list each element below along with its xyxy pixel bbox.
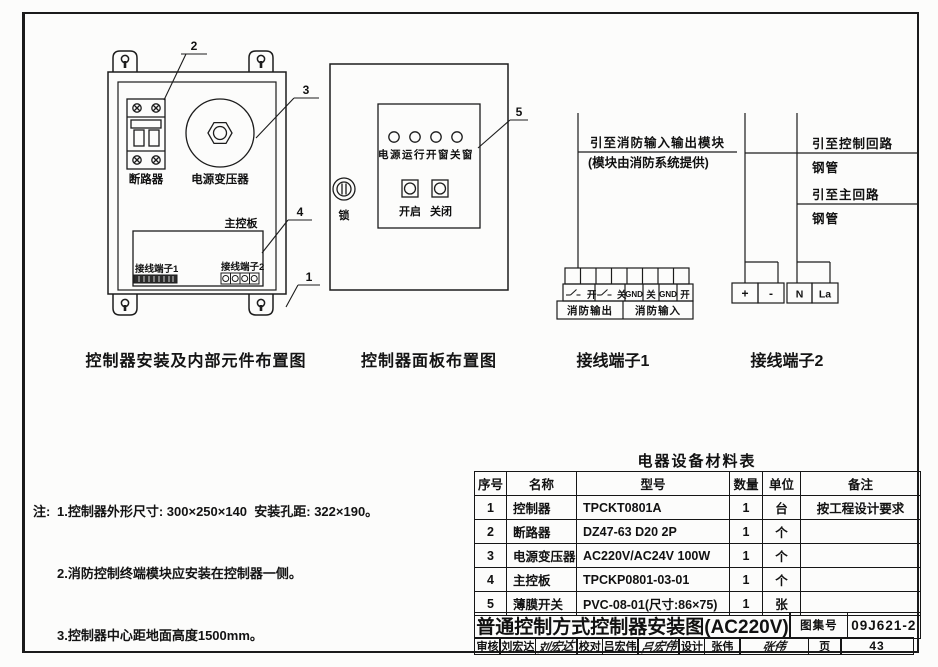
- terminal1-cell-label: 开: [587, 290, 597, 301]
- column-header: 型号: [577, 472, 730, 496]
- close-button-label: 关闭: [430, 204, 452, 218]
- designer-signature: 张伟: [761, 637, 788, 655]
- checker-name: 吕宏伟: [602, 637, 639, 655]
- table-header-row: 序号 名称 型号 数量 单位 备注: [475, 472, 921, 496]
- table-cell: 电源变压器: [507, 544, 577, 568]
- table-cell: 按工程设计要求: [801, 496, 921, 520]
- screw-icon: [133, 104, 160, 164]
- mounting-ear: [113, 294, 137, 315]
- table-cell: TPCKP0801-03-01: [577, 568, 730, 592]
- materials-table: 序号 名称 型号 数量 单位 备注 1 控制器 TPCKT0801A 1 台 按…: [474, 471, 921, 616]
- circuit-breaker: [127, 99, 165, 169]
- table-row: 4 主控板 TPCKP0801-03-01 1 个: [475, 568, 921, 592]
- notes-prefix: 注:: [33, 502, 57, 523]
- reviewer-name: 刘宏达: [499, 637, 536, 655]
- table-cell: 断路器: [507, 520, 577, 544]
- mounting-ear: [249, 294, 273, 315]
- designer-name: 张伟: [704, 637, 741, 655]
- callout-number: 1: [306, 270, 313, 284]
- table-row: 3 电源变压器 AC220V/AC24V 100W 1 个: [475, 544, 921, 568]
- mainboard-label: 主控板: [225, 216, 259, 230]
- terminal2-cell-label: -: [769, 287, 773, 301]
- design-label: 设计: [678, 637, 705, 655]
- table-cell: 1: [730, 520, 763, 544]
- terminal1-group-right: 消防输入: [635, 304, 681, 317]
- atlas-number-label: 图集号: [789, 612, 848, 639]
- checker-signature: 吕宏伟: [639, 637, 678, 655]
- table-cell: 4: [475, 568, 507, 592]
- callout-number: 2: [191, 39, 198, 53]
- table-cell: 1: [730, 496, 763, 520]
- terminal2-cell-label: +: [741, 287, 748, 301]
- table-cell: 个: [763, 544, 801, 568]
- table-cell: 控制器: [507, 496, 577, 520]
- indicator-lamp-icon: [389, 132, 462, 142]
- lock-icon: [333, 178, 355, 200]
- table-cell: 个: [763, 520, 801, 544]
- table-cell: 3: [475, 544, 507, 568]
- mounting-ear: [113, 51, 137, 72]
- hex-nut-icon: [208, 123, 232, 144]
- installation-diagram: 断路器 电源变压器 主控板 接线端子1 接线端子2: [108, 39, 320, 315]
- indicator-labels: 电源运行开窗关窗: [378, 148, 474, 161]
- board-terminal2-screws: [221, 273, 259, 284]
- terminal1-cell-label: 关: [646, 289, 656, 301]
- board-terminal1-strip: [134, 275, 177, 283]
- note-line: 2.消防控制终端模块应安装在控制器一侧。: [33, 564, 481, 585]
- board-terminal2-label: 接线端子2: [221, 261, 264, 273]
- lock-label: 锁: [339, 208, 350, 222]
- terminal1-group-left: 消防输出: [567, 304, 613, 317]
- terminal1-leader-subtext: (模块由消防系统提供): [588, 155, 709, 170]
- table-cell: 台: [763, 496, 801, 520]
- table-cell: DZ47-63 D20 2P: [577, 520, 730, 544]
- terminal2-cell-label: La: [819, 289, 831, 301]
- open-button-label: 开启: [399, 204, 421, 218]
- notes-block: 注: 1.控制器外形尺寸: 300×250×140 安装孔距: 322×190。…: [33, 460, 481, 667]
- terminal2-leader-bottom-2: 钢管: [812, 211, 839, 226]
- terminal2-leader-top-2: 钢管: [812, 160, 839, 175]
- table-cell: [801, 568, 921, 592]
- open-button-icon: [402, 180, 418, 197]
- materials-table-title: 电器设备材料表: [474, 450, 920, 471]
- close-button-icon: [432, 180, 448, 197]
- power-transformer: [186, 99, 254, 167]
- table-cell: [801, 520, 921, 544]
- note-line: 1.控制器外形尺寸: 300×250×140 安装孔距: 322×190。: [57, 502, 378, 523]
- atlas-number-value: 09J621-2: [847, 612, 921, 639]
- page-number: 43: [840, 637, 914, 655]
- screw-icon: [251, 276, 257, 282]
- page-label: 页: [808, 637, 842, 655]
- title-block: 普通控制方式控制器安装图(AC220V) 图集号 09J621-2 审核 刘宏达…: [474, 612, 921, 655]
- screw-icon: [232, 276, 238, 282]
- sheet-title: 普通控制方式控制器安装图(AC220V): [474, 612, 791, 639]
- panel-enclosure: [330, 64, 508, 290]
- callout-number: 3: [303, 83, 310, 97]
- screw-icon: [242, 276, 248, 282]
- table-row: 2 断路器 DZ47-63 D20 2P 1 个: [475, 520, 921, 544]
- terminal1-cell-label: GND: [625, 290, 643, 299]
- table-row: 1 控制器 TPCKT0801A 1 台 按工程设计要求: [475, 496, 921, 520]
- terminal1-cell-label: 开: [680, 290, 690, 301]
- column-header: 单位: [763, 472, 801, 496]
- review-label: 审核: [474, 637, 501, 655]
- column-header: 名称: [507, 472, 577, 496]
- note-line: 3.控制器中心距地面高度1500mm。: [33, 626, 481, 647]
- terminal1-diagram: 引至消防输入输出模块 (模块由消防系统提供) 开 关 GND 关 GND 开: [557, 113, 737, 319]
- column-header: 备注: [801, 472, 921, 496]
- table-cell: AC220V/AC24V 100W: [577, 544, 730, 568]
- terminal1-leader-text: 引至消防输入输出模块: [590, 135, 725, 150]
- terminal2-leader-bottom-1: 引至主回路: [812, 187, 880, 202]
- table-cell: [801, 544, 921, 568]
- reviewer-signature: 刘宏达: [537, 637, 576, 655]
- column-header: 数量: [730, 472, 763, 496]
- transformer-label: 电源变压器: [191, 172, 249, 186]
- table-cell: 1: [475, 496, 507, 520]
- table-cell: 主控板: [507, 568, 577, 592]
- mounting-ear: [249, 51, 273, 72]
- terminal1-caption: 接线端子1: [557, 347, 669, 371]
- table-cell: 1: [730, 544, 763, 568]
- callout-number: 4: [297, 205, 304, 219]
- drawing-sheet: 断路器 电源变压器 主控板 接线端子1 接线端子2: [0, 0, 938, 667]
- terminal1-cell-label: GND: [659, 290, 677, 299]
- board-terminal1-label: 接线端子1: [135, 263, 179, 275]
- table-cell: TPCKT0801A: [577, 496, 730, 520]
- terminal2-cell-label: N: [796, 289, 804, 301]
- panel-caption: 控制器面板布置图: [349, 347, 509, 371]
- enclosure-inner: [118, 82, 276, 290]
- table-cell: 2: [475, 520, 507, 544]
- installation-caption: 控制器安装及内部元件布置图: [78, 347, 314, 371]
- callout-lines: [478, 120, 528, 148]
- callout-number: 5: [516, 105, 523, 119]
- table-cell: 个: [763, 568, 801, 592]
- membrane-panel: [378, 104, 480, 228]
- table-cell: 1: [730, 568, 763, 592]
- check-label: 校对: [576, 637, 603, 655]
- column-header: 序号: [475, 472, 507, 496]
- terminal2-diagram: 引至控制回路 钢管 引至主回路 钢管 + - N La: [732, 113, 918, 303]
- breaker-label: 断路器: [129, 172, 164, 186]
- panel-diagram: 电源运行开窗关窗 开启 关闭 锁 5: [330, 64, 528, 290]
- screw-icon: [223, 276, 229, 282]
- terminal2-leader-top-1: 引至控制回路: [812, 136, 893, 151]
- terminal2-caption: 接线端子2: [731, 347, 843, 371]
